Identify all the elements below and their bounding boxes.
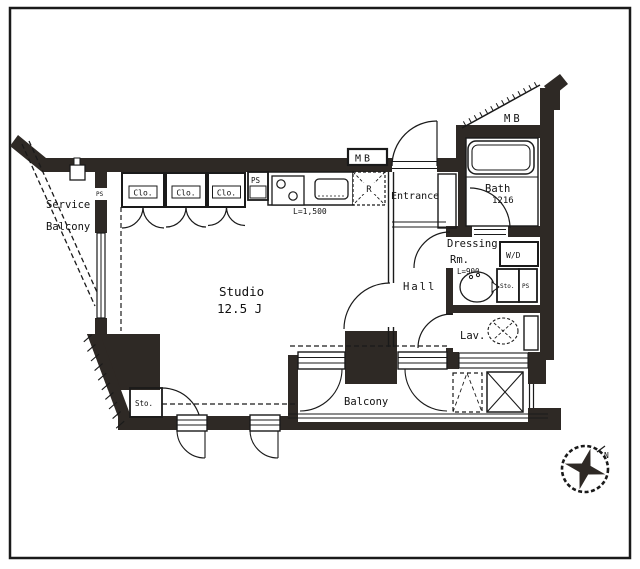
toilet-tank <box>524 316 538 350</box>
compass-north-label: N <box>604 451 609 460</box>
washbasin-icon <box>460 272 499 302</box>
walls <box>10 74 568 430</box>
compass-star-icon <box>559 443 610 494</box>
kitchen-length-label: L=1,500 <box>293 207 327 216</box>
closet-1-label: Clo. <box>133 189 152 198</box>
structure-diagonal-line <box>462 85 540 128</box>
washer-dryer-label: W/D <box>506 251 521 260</box>
entrance-label: Entrance <box>391 191 439 202</box>
pipe-space-small-label: PS <box>522 283 530 290</box>
escape-hatch <box>487 372 523 412</box>
balcony-door-right <box>398 352 447 411</box>
entrance-door-arc <box>392 121 437 166</box>
studio-south-window-1 <box>177 415 207 458</box>
service-balcony-label-1: Service <box>46 199 90 211</box>
bathtub-icon <box>468 141 534 174</box>
evacuation-partition <box>453 373 482 412</box>
service-balcony-label-2: Balcony <box>46 221 90 233</box>
diagonal-hatch-ticks-right <box>463 82 537 126</box>
meter-box-kitchen-label: MB <box>355 154 373 165</box>
storage-bottom-label: Sto. <box>135 399 153 408</box>
faucet-icon <box>74 158 80 165</box>
stove-icon <box>272 176 304 205</box>
studio-hall-door-arc <box>344 283 390 329</box>
floor-plan-drawing: Service Balcony PS Clo. Clo. Clo. PS <box>0 0 640 569</box>
hall-label: Hall <box>403 281 436 293</box>
balcony-label: Balcony <box>344 396 388 408</box>
closets: Clo. Clo. Clo. <box>122 173 245 228</box>
closet-door-arcs <box>122 207 245 228</box>
closet-3-label: Clo. <box>217 189 236 198</box>
lavatory-label: Lav. <box>460 330 485 342</box>
compass: N <box>559 443 610 494</box>
entrance: Entrance <box>389 121 457 347</box>
pipe-space-tiny-label: PS <box>96 191 104 198</box>
hall: Hall <box>344 281 436 329</box>
dressing-door-arc <box>414 232 450 268</box>
pipe-space-label: PS <box>251 176 261 185</box>
shoe-cabinet <box>438 174 456 228</box>
balcony-door-left <box>298 352 345 411</box>
studio-area-label: 12.5 J <box>217 301 262 316</box>
refrigerator-space: R <box>353 172 385 205</box>
studio-south-window-2 <box>250 415 280 458</box>
refrigerator-label: R <box>366 185 372 195</box>
closet-2-label: Clo. <box>176 189 195 198</box>
bath: Bath 1216 MB <box>462 82 540 228</box>
slop-sink-icon <box>70 165 85 180</box>
storage-small-label: Sto. <box>500 283 514 290</box>
floor-plan-page: Service Balcony PS Clo. Clo. Clo. PS <box>0 0 640 569</box>
dressing-label-2: Rm. <box>450 254 469 266</box>
dressing-label-1: Dressing <box>447 238 498 250</box>
studio-label: Studio <box>219 284 264 299</box>
meter-box-top-label: MB <box>504 113 523 125</box>
lavatory-door-arc <box>418 314 452 348</box>
